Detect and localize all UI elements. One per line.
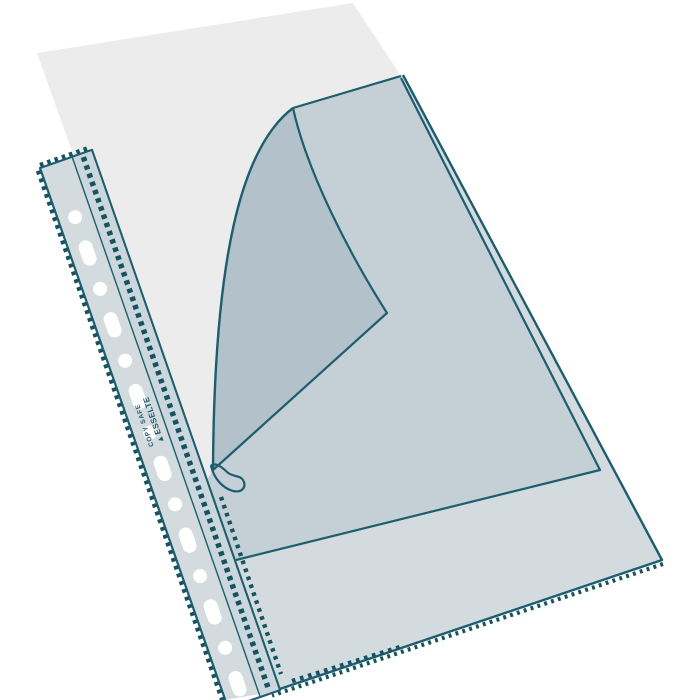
punched-pocket-illustration: COPY SAFE ▲ESSELTE (0, 0, 700, 700)
product-image: COPY SAFE ▲ESSELTE (0, 0, 700, 700)
